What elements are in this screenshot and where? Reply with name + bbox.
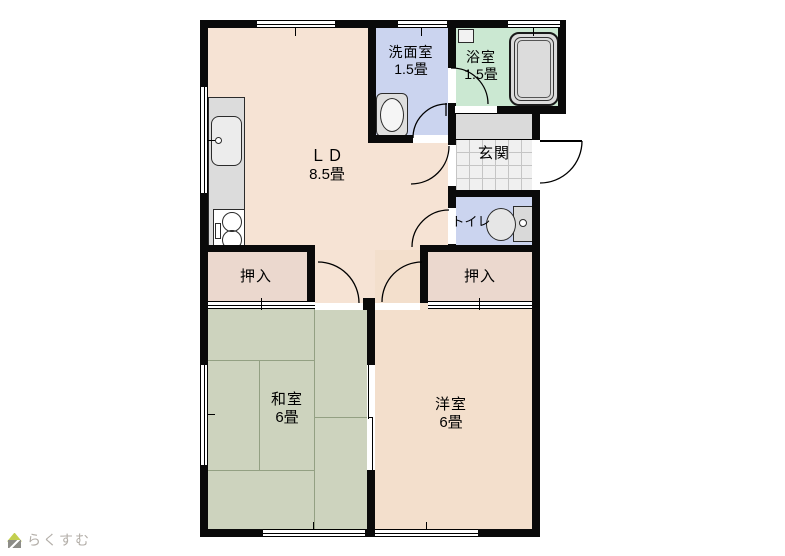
brand-name: らくすむ <box>27 530 91 550</box>
wall-toilet-top <box>448 190 540 197</box>
room-label-washroom: 洗面室 1.5畳 <box>374 44 448 78</box>
washbasin-bowl <box>380 98 404 132</box>
room-size: 1.5畳 <box>453 66 509 83</box>
toilet-knob-icon <box>519 219 527 227</box>
door-gap-bath-bottom <box>455 106 497 114</box>
room-label-western: 洋室 6畳 <box>401 396 501 432</box>
sliding-door-closet-right <box>428 301 532 309</box>
stove-icon <box>213 209 245 247</box>
room-name: ＬＤ <box>310 148 344 165</box>
brand-watermark: らくすむ <box>7 530 91 550</box>
window-top-bath <box>508 20 560 28</box>
wall-bottom <box>200 529 540 537</box>
window-bottom-tatami <box>263 529 365 537</box>
room-name: 洋室 <box>435 396 467 413</box>
room-size: 8.5畳 <box>277 166 377 184</box>
room-name: 玄関 <box>478 145 510 162</box>
door-threshold-left <box>315 303 363 310</box>
window-left-tatami <box>200 365 208 465</box>
sliding-door-tick <box>479 298 480 310</box>
wall-closet-right-left <box>420 245 428 303</box>
front-door-arc <box>540 141 582 183</box>
window-tick <box>313 522 314 529</box>
room-name: 洗面室 <box>389 44 434 60</box>
room-size: 6畳 <box>237 409 337 427</box>
room-label-entrance: 玄関 <box>456 145 532 163</box>
room-name: 和室 <box>271 391 303 408</box>
window-tick <box>208 414 215 415</box>
window-tick <box>533 28 534 36</box>
bathtub-inner <box>514 37 554 101</box>
room-name: トイレ <box>451 214 490 229</box>
wall-washroom-left <box>368 20 376 143</box>
wall-closet-left-top <box>200 245 315 252</box>
sliding-door-tick <box>261 298 262 310</box>
house-slash <box>8 540 21 548</box>
room-size: 6畳 <box>401 414 501 432</box>
room-label-closet-right: 押入 <box>428 268 532 286</box>
wall-bath-right <box>558 20 566 114</box>
wall-washroom-bottom <box>368 135 413 143</box>
sliding-door-leaf <box>368 417 373 418</box>
room-label-bath: 浴室 1.5畳 <box>453 49 509 83</box>
room-name: 押入 <box>464 268 496 285</box>
door-gap-washroom <box>413 135 448 143</box>
window-top-ld <box>257 20 335 28</box>
room-label-toilet: トイレ <box>451 214 491 230</box>
floor-plan: ＬＤ 8.5畳 洗面室 1.5畳 浴室 1.5畳 玄関 トイレ 押入 押入 和室… <box>0 0 785 556</box>
wall-right-lower <box>532 190 540 537</box>
door-threshold-right <box>375 303 420 310</box>
shower-unit-icon <box>458 29 474 43</box>
hallway-floor <box>456 113 532 139</box>
burner-icon <box>222 212 242 232</box>
door-gap-entrance-hall <box>448 145 456 186</box>
wall-closet-left-right <box>307 245 315 303</box>
bathtub-inner2 <box>517 40 551 98</box>
window-left-ld <box>200 87 208 193</box>
house-logo-icon <box>7 533 22 548</box>
wall-bath-bottom <box>497 106 566 114</box>
window-tick <box>208 140 215 141</box>
room-size: 1.5畳 <box>374 61 448 78</box>
grill-icon <box>215 223 221 239</box>
room-name: 浴室 <box>466 49 496 65</box>
bathtub-icon <box>509 32 559 106</box>
tatami-line <box>208 360 314 361</box>
faucet-icon <box>215 137 222 144</box>
window-tick <box>295 28 296 36</box>
tatami-line <box>208 470 314 471</box>
wall-room-divider-bot <box>367 470 375 529</box>
wall-room-divider-top <box>367 303 375 365</box>
window-top-washroom <box>398 20 447 28</box>
window-tick <box>426 522 427 529</box>
room-name: 押入 <box>240 268 272 285</box>
washbasin-icon <box>376 93 408 137</box>
sliding-door-leaf <box>368 365 369 419</box>
room-label-tatami: 和室 6畳 <box>237 391 337 427</box>
room-label-ld: ＬＤ 8.5畳 <box>277 147 377 184</box>
window-tick <box>421 28 422 36</box>
wall-closet-right-top <box>420 245 540 252</box>
window-bottom-western <box>375 529 478 537</box>
sliding-door-leaf <box>372 417 373 470</box>
wall-right-hall <box>532 113 540 140</box>
room-label-closet-left: 押入 <box>205 268 307 286</box>
sliding-door-room-divider <box>367 365 375 470</box>
